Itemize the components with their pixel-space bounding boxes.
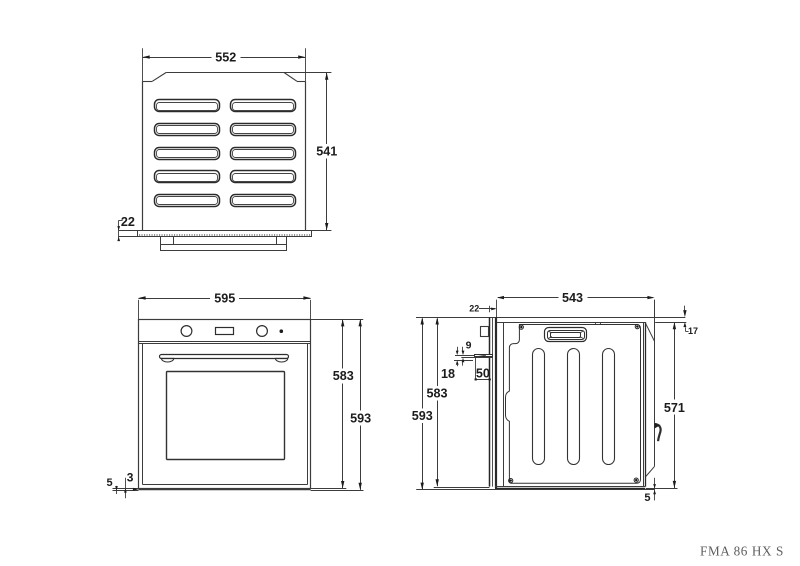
svg-text:541: 541 (316, 144, 337, 158)
svg-text:593: 593 (350, 411, 371, 425)
svg-text:543: 543 (562, 291, 583, 305)
svg-text:552: 552 (215, 51, 236, 65)
svg-text:5: 5 (107, 477, 113, 489)
svg-text:22: 22 (469, 304, 479, 314)
svg-text:17: 17 (688, 326, 698, 336)
svg-text:22: 22 (121, 215, 135, 229)
svg-text:9: 9 (466, 340, 472, 352)
svg-text:593: 593 (412, 409, 433, 423)
svg-text:583: 583 (426, 386, 447, 400)
svg-text:50: 50 (476, 366, 490, 380)
svg-text:5: 5 (644, 492, 650, 504)
svg-text:583: 583 (333, 369, 354, 383)
svg-text:FMA 86 HX S: FMA 86 HX S (700, 544, 784, 559)
svg-text:595: 595 (214, 292, 235, 306)
svg-text:3: 3 (127, 471, 134, 485)
svg-text:18: 18 (441, 367, 455, 381)
svg-text:571: 571 (664, 401, 685, 415)
